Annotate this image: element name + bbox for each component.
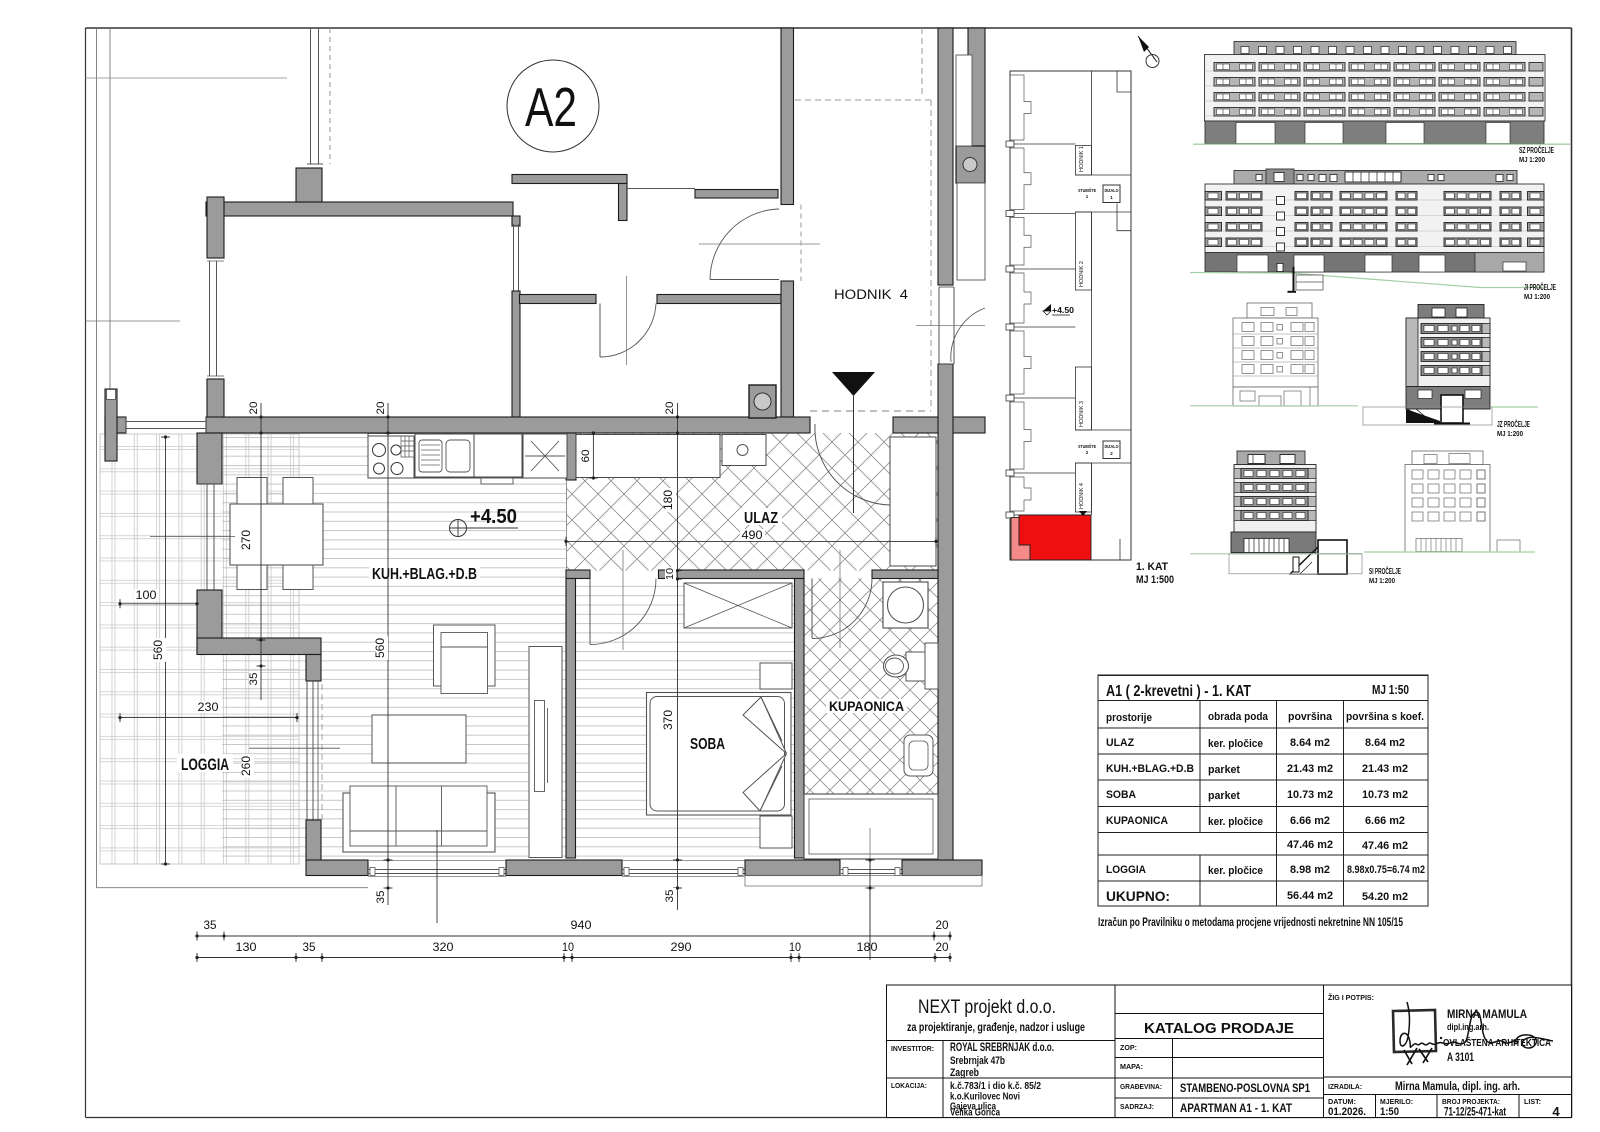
svg-text:MIRNA MAMULA: MIRNA MAMULA — [1447, 1007, 1527, 1021]
svg-text:HODNIK 1: HODNIK 1 — [1079, 146, 1085, 172]
svg-text:ker. pločice: ker. pločice — [1208, 865, 1263, 877]
svg-text:HODNIK 4: HODNIK 4 — [834, 287, 909, 302]
svg-text:ULAZ: ULAZ — [1106, 737, 1134, 749]
svg-text:230: 230 — [198, 702, 219, 714]
svg-text:ZOP:: ZOP: — [1120, 1043, 1137, 1052]
svg-text:MJ 1:200: MJ 1:200 — [1519, 155, 1545, 164]
svg-text:IZRADILA:: IZRADILA: — [1328, 1082, 1362, 1091]
svg-text:47.46 m2: 47.46 m2 — [1362, 840, 1408, 852]
svg-text:SZ PROČELJE: SZ PROČELJE — [1519, 146, 1554, 155]
svg-text:A 3101: A 3101 — [1447, 1052, 1474, 1064]
svg-text:APARTMAN A1 - 1. KAT: APARTMAN A1 - 1. KAT — [1180, 1101, 1293, 1115]
svg-text:LOKACIJA:: LOKACIJA: — [891, 1081, 927, 1090]
svg-text:parket: parket — [1208, 790, 1240, 802]
svg-text:940: 940 — [571, 920, 592, 932]
svg-text:INVESTITOR:: INVESTITOR: — [891, 1044, 934, 1053]
svg-text:ROYAL SREBRNJAK d.o.o.: ROYAL SREBRNJAK d.o.o. — [950, 1040, 1054, 1054]
svg-text:35: 35 — [204, 920, 217, 932]
svg-text:NEXT projekt d.o.o.: NEXT projekt d.o.o. — [918, 996, 1056, 1018]
svg-text:01.2026.: 01.2026. — [1328, 1106, 1366, 1118]
svg-text:370: 370 — [663, 710, 675, 730]
svg-text:JI PROČELJE: JI PROČELJE — [1524, 283, 1556, 292]
svg-text:Velika Gorica: Velika Gorica — [950, 1107, 1000, 1119]
svg-text:STAMBENO-POSLOVNA SP1: STAMBENO-POSLOVNA SP1 — [1180, 1081, 1310, 1095]
svg-text:180: 180 — [857, 942, 878, 954]
svg-text:HODNIK 3: HODNIK 3 — [1079, 401, 1085, 427]
svg-text:20: 20 — [664, 402, 676, 415]
svg-text:obrada poda: obrada poda — [1208, 711, 1269, 723]
svg-text:290: 290 — [671, 942, 692, 954]
svg-text:MJ 1:200: MJ 1:200 — [1497, 429, 1523, 438]
svg-text:60: 60 — [580, 450, 592, 463]
svg-text:Izračun po Pravilniku o metoda: Izračun po Pravilniku o metodama procjen… — [1098, 915, 1403, 929]
svg-text:za projektiranje, građenje, na: za projektiranje, građenje, nadzor i usl… — [907, 1022, 1085, 1034]
svg-text:6.66 m2: 6.66 m2 — [1365, 815, 1405, 827]
svg-text:KUPAONICA: KUPAONICA — [1106, 815, 1168, 827]
svg-text:MJ 1:50: MJ 1:50 — [1372, 683, 1409, 697]
svg-text:10.73 m2: 10.73 m2 — [1287, 789, 1333, 801]
svg-text:56.44 m2: 56.44 m2 — [1287, 890, 1333, 902]
svg-text:35: 35 — [664, 890, 676, 903]
svg-text:20: 20 — [936, 920, 949, 932]
svg-text:20: 20 — [248, 402, 260, 415]
svg-text:HODNIK 2: HODNIK 2 — [1079, 261, 1085, 287]
svg-text:20: 20 — [936, 942, 949, 954]
svg-text:BROJ PROJEKTA:: BROJ PROJEKTA: — [1442, 1097, 1500, 1106]
svg-text:MJ 1:500: MJ 1:500 — [1136, 574, 1174, 586]
svg-text:KUH.+BLAG.+D.B: KUH.+BLAG.+D.B — [1106, 763, 1194, 775]
svg-text:A1 ( 2-krevetni ) - 1. KAT: A1 ( 2-krevetni ) - 1. KAT — [1106, 683, 1251, 700]
svg-text:KATALOG PRODAJE: KATALOG PRODAJE — [1144, 1020, 1294, 1037]
svg-text:STUBIŠTE: STUBIŠTE — [1078, 444, 1096, 449]
svg-text:ULAZ: ULAZ — [744, 510, 778, 527]
svg-text:10.73 m2: 10.73 m2 — [1362, 789, 1408, 801]
svg-text:ŽIG I POTPIS:: ŽIG I POTPIS: — [1328, 993, 1374, 1002]
svg-text:270: 270 — [241, 530, 253, 550]
svg-text:površina: površina — [1288, 711, 1333, 723]
svg-text:površina s koef.: površina s koef. — [1346, 711, 1424, 723]
svg-text:SOBA: SOBA — [1106, 789, 1136, 801]
svg-text:4: 4 — [1552, 1104, 1560, 1119]
svg-text:MAPA:: MAPA: — [1120, 1062, 1143, 1071]
svg-text:prostorije: prostorije — [1106, 712, 1152, 724]
svg-text:71-12/25-471-kat: 71-12/25-471-kat — [1444, 1107, 1506, 1119]
svg-text:8.98 m2: 8.98 m2 — [1290, 864, 1330, 876]
svg-text:LOGGIA: LOGGIA — [181, 755, 229, 774]
svg-text:10: 10 — [562, 942, 574, 954]
svg-text:130: 130 — [236, 942, 257, 954]
svg-text:SADRZAJ:: SADRZAJ: — [1120, 1102, 1154, 1111]
svg-text:6.66 m2: 6.66 m2 — [1290, 815, 1330, 827]
svg-text:JZ PROČELJE: JZ PROČELJE — [1497, 420, 1530, 429]
svg-text:54.20 m2: 54.20 m2 — [1362, 891, 1408, 903]
svg-text:KUPAONICA: KUPAONICA — [829, 699, 904, 714]
svg-text:8.64 m2: 8.64 m2 — [1365, 737, 1405, 749]
svg-text:MJ 1:200: MJ 1:200 — [1369, 576, 1395, 585]
svg-text:LIST:: LIST: — [1524, 1097, 1541, 1106]
svg-text:10: 10 — [664, 568, 676, 580]
svg-text:Zagreb: Zagreb — [950, 1067, 979, 1079]
svg-text:1. KAT: 1. KAT — [1136, 561, 1168, 573]
svg-text:20: 20 — [375, 402, 387, 415]
svg-text:DIZALO: DIZALO — [1105, 444, 1120, 449]
svg-text:MJERILO:: MJERILO: — [1380, 1097, 1413, 1106]
svg-text:10: 10 — [789, 942, 801, 954]
svg-text:560: 560 — [153, 640, 165, 660]
svg-text:parket: parket — [1208, 764, 1240, 776]
svg-text:GRAĐEVINA:: GRAĐEVINA: — [1120, 1082, 1162, 1091]
svg-text:A2: A2 — [525, 76, 577, 138]
svg-text:Mirna Mamula, dipl. ing. arh.: Mirna Mamula, dipl. ing. arh. — [1395, 1079, 1520, 1093]
svg-text:DATUM:: DATUM: — [1328, 1097, 1356, 1106]
svg-text:8.64 m2: 8.64 m2 — [1290, 737, 1330, 749]
svg-text:1:50: 1:50 — [1380, 1106, 1399, 1118]
svg-text:180: 180 — [663, 490, 675, 510]
svg-text:8.98x0.75=6.74 m2: 8.98x0.75=6.74 m2 — [1347, 864, 1425, 876]
svg-text:35: 35 — [303, 942, 316, 954]
svg-text:+4.50: +4.50 — [1052, 305, 1074, 315]
svg-text:+4.50: +4.50 — [470, 506, 517, 528]
svg-text:ker. pločice: ker. pločice — [1208, 816, 1263, 828]
svg-text:HODNIK 4: HODNIK 4 — [1079, 483, 1085, 509]
svg-text:ker. pločice: ker. pločice — [1208, 738, 1263, 750]
svg-text:21.43 m2: 21.43 m2 — [1362, 763, 1408, 775]
svg-text:100: 100 — [136, 590, 157, 602]
svg-text:47.46 m2: 47.46 m2 — [1287, 839, 1333, 851]
svg-text:SI PROČELJE: SI PROČELJE — [1369, 567, 1401, 576]
svg-text:35: 35 — [248, 673, 260, 686]
svg-text:SOBA: SOBA — [690, 736, 725, 753]
svg-text:Srebrnjak 47b: Srebrnjak 47b — [950, 1055, 1005, 1067]
svg-text:260: 260 — [241, 756, 253, 776]
svg-text:LOGGIA: LOGGIA — [1106, 864, 1146, 876]
svg-text:35: 35 — [375, 891, 387, 904]
svg-text:UKUPNO:: UKUPNO: — [1106, 888, 1170, 904]
svg-text:320: 320 — [433, 942, 454, 954]
svg-text:21.43 m2: 21.43 m2 — [1287, 763, 1333, 775]
svg-text:MJ 1:200: MJ 1:200 — [1524, 292, 1550, 301]
svg-text:490: 490 — [742, 530, 763, 542]
svg-text:DIZALO: DIZALO — [1105, 188, 1120, 193]
svg-text:560: 560 — [375, 638, 387, 658]
svg-text:STUBIŠTE: STUBIŠTE — [1078, 188, 1096, 193]
